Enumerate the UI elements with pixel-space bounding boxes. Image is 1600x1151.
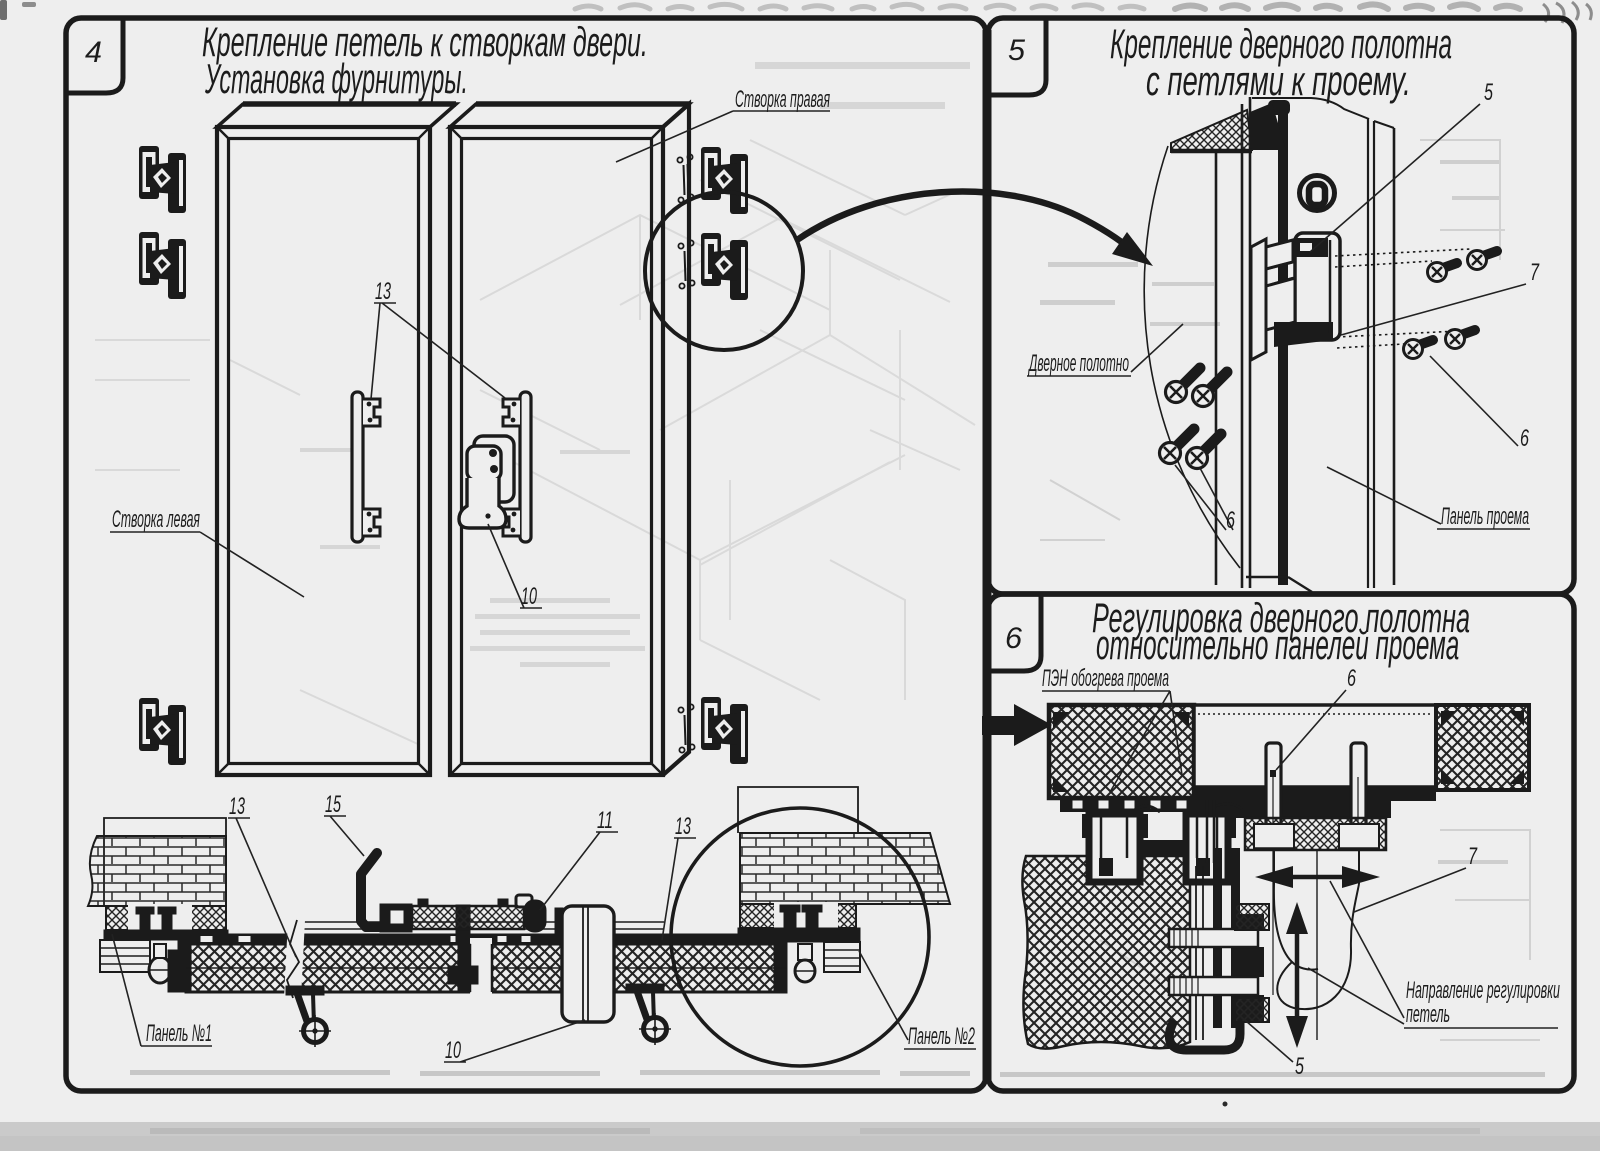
svg-text:Панель №2: Панель №2 [908, 1024, 975, 1050]
svg-text:6: 6 [1520, 425, 1529, 452]
svg-text:Створка левая: Створка левая [112, 507, 200, 533]
svg-text:11: 11 [597, 808, 613, 834]
svg-text:13: 13 [375, 278, 391, 305]
svg-text:ПЭН обогрева проема: ПЭН обогрева проема [1042, 666, 1169, 693]
svg-text:5: 5 [1295, 1053, 1304, 1080]
svg-text:5: 5 [1008, 34, 1025, 67]
svg-text:15: 15 [325, 791, 342, 818]
svg-text:6: 6 [1347, 665, 1356, 692]
svg-text:7: 7 [1530, 259, 1539, 286]
svg-text:4: 4 [85, 36, 102, 69]
svg-text:6: 6 [1226, 507, 1235, 534]
svg-text:6: 6 [1005, 622, 1022, 655]
svg-text:Дверное полотно: Дверное полотно [1028, 351, 1129, 378]
svg-text:Панель №1: Панель №1 [146, 1021, 212, 1047]
svg-text:10: 10 [521, 583, 537, 610]
svg-text:5: 5 [1484, 79, 1493, 106]
svg-text:13: 13 [675, 813, 691, 840]
svg-text:относительно панелей проема: относительно панелей проема [1096, 622, 1459, 669]
svg-text:петель: петель [1406, 1002, 1450, 1028]
svg-text:7: 7 [1468, 843, 1477, 870]
svg-text:Створка правая: Створка правая [735, 87, 830, 113]
svg-text:Панель проема: Панель проема [1441, 504, 1529, 530]
svg-text:13: 13 [229, 793, 245, 820]
svg-text:Установка фурнитуры.: Установка фурнитуры. [204, 56, 468, 103]
svg-text:Направление регулировки: Направление регулировки [1406, 978, 1560, 1004]
svg-text:10: 10 [445, 1037, 461, 1064]
